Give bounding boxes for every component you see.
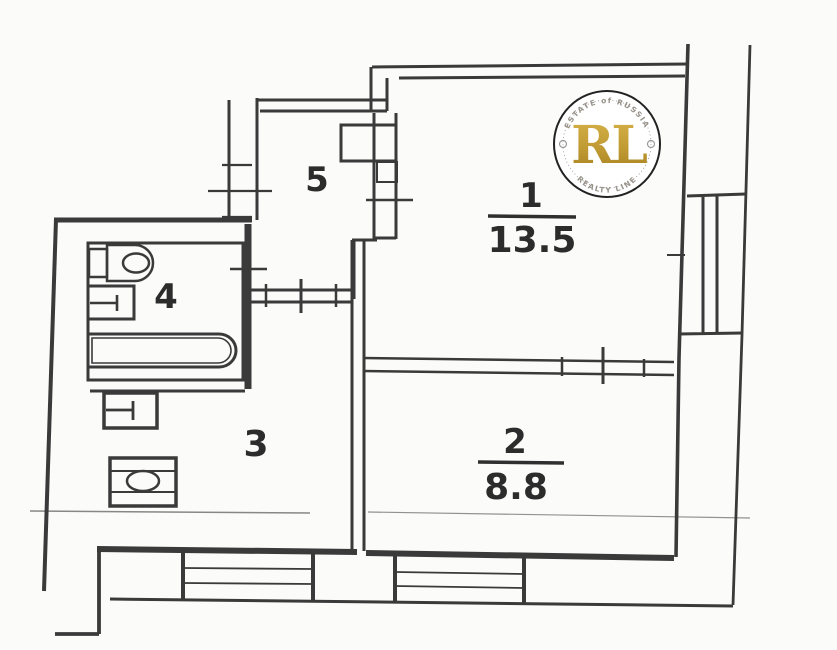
sink-icon — [104, 393, 157, 428]
sink-faucet — [90, 295, 117, 311]
window-room-2 — [395, 555, 524, 605]
floor-plan-page: 1 13.5 2 8.8 3 4 5 ESTATE of RUSSIA REAL… — [0, 0, 837, 650]
room-2-area: 8.8 — [484, 467, 548, 508]
window-panes — [183, 568, 313, 584]
room-1-fraction-line — [488, 216, 576, 217]
rooms-1-2-wall — [363, 347, 674, 384]
logo-initials: RL — [571, 115, 647, 176]
bathtub-outer — [88, 334, 236, 367]
washer-lines — [111, 471, 175, 492]
realty-line-logo: ESTATE of RUSSIA REALTY LINE RL — [554, 91, 660, 197]
faint-pencil-line — [30, 511, 310, 513]
scan-artifact-lines — [30, 511, 750, 518]
washer-drum — [127, 471, 159, 491]
room-5-perimeter — [229, 98, 387, 220]
outer-wall-entry-step — [55, 551, 99, 634]
faint-pencil-line — [368, 512, 750, 518]
bathtub-inner — [92, 338, 231, 363]
wall-ticks — [208, 165, 272, 217]
toilet-icon — [89, 245, 153, 281]
outer-wall-left — [44, 219, 56, 591]
room-1-number: 1 — [519, 176, 543, 216]
toilet-tank — [89, 249, 107, 277]
window-jambs — [183, 551, 313, 601]
window-panes — [395, 572, 524, 588]
room-2-fraction-line — [478, 462, 564, 463]
window-mullions — [678, 194, 746, 334]
toilet-seat — [123, 254, 149, 273]
sink-icon — [88, 286, 134, 319]
room-1-area: 13.5 — [488, 220, 577, 261]
room-4-number: 4 — [154, 277, 178, 317]
washer-icon — [110, 458, 176, 506]
outer-wall-bottom — [110, 599, 733, 606]
room-3-fixtures — [104, 393, 176, 506]
bottom-walls — [97, 549, 674, 605]
bathtub-icon — [88, 334, 236, 367]
outer-boundary-far-right — [733, 45, 750, 605]
floor-plan-drawing: 1 13.5 2 8.8 3 4 5 ESTATE of RUSSIA REAL… — [0, 0, 837, 650]
room-3-number: 3 — [243, 424, 268, 465]
wall-double-line — [363, 358, 674, 375]
vent-shaft-column — [352, 113, 396, 240]
sink-faucet — [106, 401, 133, 420]
stove-icon — [341, 125, 396, 161]
window-room-3 — [183, 551, 313, 601]
room-2-number: 2 — [503, 422, 527, 462]
room-5-number: 5 — [305, 160, 329, 200]
outer-wall-right — [676, 44, 688, 557]
window-jambs — [395, 555, 524, 605]
toilet-bowl — [107, 245, 153, 281]
washer-body — [110, 458, 176, 506]
shaft-cell — [377, 162, 397, 182]
